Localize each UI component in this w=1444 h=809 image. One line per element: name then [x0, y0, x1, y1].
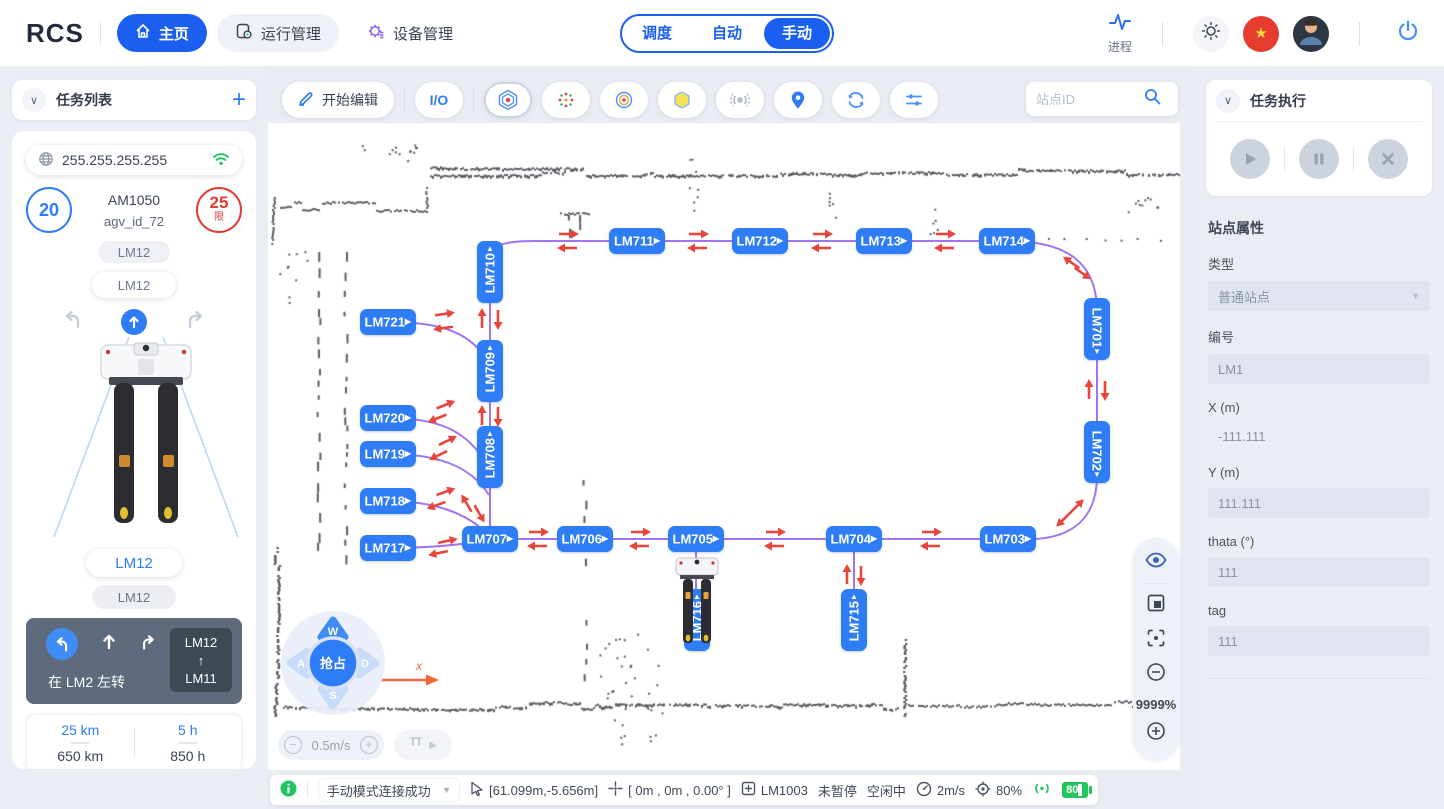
route-arrow — [494, 310, 503, 330]
monitor-gear-icon — [235, 22, 253, 44]
station-chip-1: LM12 — [98, 241, 170, 263]
nav-home[interactable]: 主页 — [117, 14, 207, 52]
map-station[interactable]: LM714▶ — [979, 228, 1035, 254]
fork-control[interactable]: ▶ — [394, 730, 452, 760]
turn-right-icon[interactable] — [185, 308, 207, 335]
scatter-icon — [556, 90, 576, 110]
avatar-icon — [1293, 16, 1329, 52]
code-value: LM1 — [1218, 362, 1243, 377]
eye-icon[interactable] — [1145, 552, 1167, 573]
location-pin-icon — [789, 90, 807, 110]
route-arrow — [689, 230, 709, 239]
robot-agv-id: agv_id_72 — [104, 214, 164, 229]
navigation-panel: LM12 ↑ LM11 在 LM2 左转 — [26, 618, 242, 704]
mode-status-text: 手动模式连接成功 — [327, 781, 431, 800]
task-exec-card: ∨ 任务执行 — [1206, 80, 1432, 196]
hexagon-layers-icon — [497, 89, 519, 111]
speedometer-icon — [916, 781, 932, 800]
signal-icon — [1032, 781, 1052, 799]
speed-minus-button[interactable]: − — [284, 736, 302, 754]
type-select[interactable]: 普通站点 ▼ — [1208, 281, 1430, 311]
robot-ip-value: 255.255.255.255 — [62, 152, 167, 168]
route-arrow — [478, 308, 487, 328]
nav-device-label: 设备管理 — [393, 23, 453, 44]
station-direction-icon: ▶ — [654, 237, 660, 245]
navigation-hint: 在 LM2 左转 — [38, 672, 162, 692]
route-arrow — [934, 244, 954, 253]
refresh-icon — [846, 90, 866, 110]
divider — [1143, 583, 1169, 584]
start-edit-label: 开始编辑 — [322, 90, 378, 110]
nav-operation-label: 运行管理 — [261, 23, 321, 44]
map-view-controls: 9999% — [1133, 538, 1179, 760]
route-arrow — [843, 564, 852, 584]
confidence-value: 80% — [996, 783, 1022, 798]
map-x-axis: x — [380, 659, 440, 692]
robot-ip-field[interactable]: 255.255.255.255 — [26, 145, 242, 175]
x-axis-arrow-icon — [380, 673, 440, 687]
nav-operation[interactable]: 运行管理 — [217, 14, 339, 52]
zoom-out-icon[interactable] — [1146, 662, 1166, 687]
robot-model: AM1050 — [104, 192, 164, 208]
mode-auto[interactable]: 自动 — [694, 18, 760, 49]
center-focus-icon[interactable] — [1146, 628, 1166, 653]
current-station: LM1003 — [741, 781, 808, 799]
station-label: LM721 — [365, 315, 405, 330]
station-label: LM711 — [614, 234, 654, 249]
station-search-input[interactable] — [1036, 92, 1136, 107]
current-station-value: LM1003 — [761, 783, 808, 798]
divider — [1162, 22, 1163, 46]
station-label: LM708 — [483, 438, 498, 478]
task-list-header: ∨ 任务列表 + — [12, 80, 256, 120]
task-list-title: 任务列表 — [56, 90, 112, 110]
svg-text:S: S — [329, 690, 336, 702]
theta-value: 111 — [1218, 565, 1238, 580]
station-label: LM706 — [562, 532, 602, 547]
x-axis-label: x — [416, 659, 440, 673]
trip-distance: 25 km — [27, 722, 134, 738]
pause-state: 未暂停 — [818, 781, 857, 800]
map-station[interactable]: LM707▶ — [462, 526, 518, 552]
speed-status: 2m/s — [916, 781, 965, 800]
map-area: LM710▲LM709▲LM708▲LM711▶LM712▶LM713▶LM71… — [268, 67, 1194, 809]
station-direction-icon: ▶ — [507, 535, 513, 543]
svg-text:D: D — [361, 658, 369, 670]
station-direction-icon: ▶ — [602, 535, 608, 543]
route-arrow — [557, 244, 577, 253]
sliders-icon — [904, 90, 924, 110]
divider — [71, 742, 89, 744]
route-arrow — [432, 322, 453, 334]
plus-square-icon — [741, 781, 756, 799]
map-station[interactable]: LM721▶ — [360, 309, 416, 335]
map-station[interactable]: LM717▶ — [360, 535, 416, 561]
map-station[interactable]: LM703▶ — [980, 526, 1036, 552]
speed-plus-button[interactable]: + — [360, 736, 378, 754]
cursor-position: [61.099m,-5.656m] — [470, 781, 598, 799]
caret-down-icon: ▼ — [442, 785, 451, 795]
station-label: LM704 — [831, 532, 871, 547]
scatter-points-button[interactable] — [542, 82, 590, 118]
filters-button[interactable] — [890, 82, 938, 118]
station-direction-icon: ▼ — [1093, 471, 1101, 479]
position-confidence-icon — [975, 781, 991, 800]
mode-dispatch[interactable]: 调度 — [624, 18, 690, 49]
status-bar: 手动模式连接成功 ▼ [61.099m,-5.656m] [ 0m , 0m ,… — [270, 775, 1098, 805]
direction-row — [26, 308, 242, 335]
limit-suffix: 限 — [214, 210, 224, 225]
station-label: LM718 — [365, 494, 405, 509]
lidar-button[interactable] — [716, 82, 764, 118]
cursor-position-value: [61.099m,-5.656m] — [489, 783, 598, 798]
route-arrow — [920, 542, 940, 551]
code-label: 编号 — [1208, 327, 1430, 346]
forklift-graphic — [101, 343, 191, 523]
robot-pose-value: [ 0m , 0m , 0.00° ] — [628, 783, 731, 798]
route-arrow — [857, 566, 866, 586]
map-station[interactable]: LM704▶ — [826, 526, 882, 552]
odometer-card: 25 km 650 km 5 h 850 h — [26, 714, 242, 769]
zoom-in-icon[interactable] — [1146, 721, 1166, 746]
route-arrow — [813, 230, 833, 239]
divider — [1208, 678, 1430, 679]
map-station[interactable]: LM718▶ — [360, 488, 416, 514]
topbar-actions: 进程 ★ — [1108, 0, 1426, 67]
sun-icon — [1201, 21, 1221, 46]
station-direction-icon: ▲ — [486, 430, 494, 438]
straight-icon — [100, 633, 118, 656]
route-arrow — [527, 542, 547, 551]
route-arrow: ↑ — [198, 653, 205, 668]
map-station[interactable]: LM713▶ — [856, 228, 912, 254]
battery-percent: 80 — [1066, 784, 1078, 796]
main-nav: 主页 运行管理 设备管理 — [117, 14, 471, 52]
top-bar: RCS 主页 运行管理 设备管理 调度 自动 手动 进程 ★ — [0, 0, 1444, 67]
map-robot-sprite[interactable] — [673, 556, 721, 653]
start-edit-button[interactable]: 开始编辑 — [282, 82, 394, 118]
station-direction-icon: ▲ — [850, 593, 858, 601]
map-station[interactable]: LM715▲ — [841, 589, 867, 651]
map-station[interactable]: LM709▲ — [477, 340, 503, 402]
go-straight-icon[interactable] — [121, 309, 147, 335]
route-arrow — [478, 405, 487, 425]
power-icon — [1396, 19, 1420, 48]
route-arrow — [559, 230, 579, 239]
station-label: LM714 — [984, 234, 1024, 249]
pencil-icon — [298, 91, 314, 110]
station-direction-icon: ▼ — [1093, 348, 1101, 356]
station-direction-icon: ▶ — [405, 450, 411, 458]
total-hours: 850 h — [135, 748, 242, 764]
station-label: LM709 — [483, 352, 498, 392]
station-search — [1026, 82, 1178, 116]
station-direction-icon: ▶ — [405, 318, 411, 326]
turn-left-icon[interactable] — [61, 308, 83, 335]
manual-speed-control: − 0.5m/s + — [278, 730, 384, 760]
battery-indicator: 80 — [1062, 782, 1088, 798]
crosshair-icon — [608, 781, 623, 799]
route-arrow — [631, 528, 651, 537]
route-arrow — [494, 407, 503, 427]
station-label: LM701 — [1090, 308, 1105, 348]
map-station[interactable]: LM708▲ — [477, 426, 503, 488]
theta-label: thata (°) — [1208, 534, 1430, 549]
search-icon[interactable] — [1144, 88, 1161, 110]
info-icon — [280, 780, 297, 800]
route-to: LM11 — [185, 671, 217, 686]
robot-identity: AM1050 agv_id_72 — [104, 192, 164, 229]
route-arrow — [435, 484, 457, 499]
tag-input[interactable]: 111 — [1208, 626, 1430, 656]
station-label: LM703 — [985, 532, 1025, 547]
route-from: LM12 — [185, 635, 218, 650]
speed-circle: 20 — [26, 187, 72, 233]
station-label: LM713 — [861, 234, 901, 249]
navigation-arrows — [38, 628, 162, 660]
route-arrow — [1085, 379, 1094, 399]
x-label: X (m) — [1208, 400, 1430, 415]
station-direction-icon: ▶ — [405, 497, 411, 505]
station-direction-icon: ▶ — [871, 535, 877, 543]
station-properties-title: 站点属性 — [1208, 218, 1430, 238]
station-direction-icon: ▶ — [1025, 535, 1031, 543]
total-distance: 650 km — [27, 748, 134, 764]
confidence-status: 80% — [975, 781, 1022, 800]
fork-play-icon: ▶ — [429, 740, 437, 751]
divider — [1359, 22, 1360, 46]
map-station[interactable]: LM702▼ — [1084, 421, 1110, 483]
y-input[interactable]: 111.111 — [1208, 488, 1430, 518]
robot-speed-row: 20 AM1050 agv_id_72 25 限 — [26, 187, 242, 233]
robot-pose: [ 0m , 0m , 0.00° ] — [608, 781, 731, 799]
location-button[interactable] — [774, 82, 822, 118]
divider — [1284, 146, 1285, 172]
route-box: LM12 ↑ LM11 — [170, 628, 232, 692]
task-exec-title: 任务执行 — [1250, 91, 1306, 111]
route-arrow — [766, 528, 786, 537]
theme-button[interactable] — [1193, 16, 1229, 52]
chevron-down-icon[interactable]: ∨ — [1216, 89, 1240, 113]
route-arrow — [936, 230, 956, 239]
turn-left-active-icon — [46, 628, 78, 660]
map-station[interactable]: LM710▲ — [477, 241, 503, 303]
robot-card: 255.255.255.255 20 AM1050 agv_id_72 25 限… — [12, 131, 256, 769]
mode-status-select[interactable]: 手动模式连接成功 ▼ — [318, 778, 460, 802]
station-label: LM710 — [483, 253, 498, 293]
station-direction-icon: ▲ — [486, 344, 494, 352]
svg-text:W: W — [328, 626, 339, 638]
speed-value: 2m/s — [937, 783, 965, 798]
layers-hexagon-button[interactable] — [484, 82, 532, 118]
hours-stat: 5 h 850 h — [135, 722, 242, 764]
cancel-task-button[interactable] — [1368, 139, 1408, 179]
station-direction-icon: ▶ — [405, 544, 411, 552]
task-list-panel: ∨ 任务列表 + 255.255.255.255 20 AM1050 agv_i… — [0, 67, 268, 809]
map-station[interactable]: LM701▼ — [1084, 298, 1110, 360]
idle-state: 空闲中 — [867, 781, 906, 800]
task-exec-panel: ∨ 任务执行 站点属性 类型 普通站点 ▼ 编号 LM1 X (m) -111.… — [1194, 67, 1444, 809]
minimap-icon[interactable] — [1146, 593, 1166, 618]
cursor-icon — [470, 781, 484, 799]
route-arrow — [1101, 381, 1110, 401]
turn-right-small-icon — [140, 633, 158, 656]
station-label: LM717 — [365, 541, 405, 556]
x-value: -111.111 — [1218, 429, 1265, 444]
current-station-pill: LM12 — [86, 549, 182, 577]
station-label: LM720 — [365, 411, 405, 426]
battery-nib — [1089, 786, 1092, 794]
map-station[interactable]: LM711▶ — [609, 228, 665, 254]
yellow-hexagon-icon — [672, 90, 692, 110]
divider — [100, 21, 101, 45]
gear-icon — [367, 22, 385, 44]
home-icon — [135, 23, 151, 43]
divider — [1353, 146, 1354, 172]
route-arrow — [764, 542, 784, 551]
mode-manual[interactable]: 手动 — [764, 18, 830, 49]
manual-speed-value: 0.5m/s — [311, 738, 350, 753]
station-properties: 站点属性 类型 普通站点 ▼ 编号 LM1 X (m) -111.111 Y (… — [1194, 218, 1444, 679]
power-button[interactable] — [1390, 16, 1426, 52]
globe-icon — [38, 151, 54, 170]
station-label: LM705 — [673, 532, 713, 547]
station-direction-icon: ▶ — [901, 237, 907, 245]
refresh-button[interactable] — [832, 82, 880, 118]
station-label: LM715 — [847, 601, 862, 641]
limit-value: 25 — [210, 195, 229, 210]
svg-text:抢占: 抢占 — [320, 656, 346, 671]
divider — [307, 782, 308, 798]
y-label: Y (m) — [1208, 465, 1430, 480]
io-label: I/O — [430, 92, 449, 108]
route-arrow — [811, 244, 831, 253]
tag-label: tag — [1208, 603, 1430, 618]
chevron-down-icon[interactable]: ∨ — [22, 88, 46, 112]
map-station[interactable]: LM719▶ — [360, 441, 416, 467]
route-arrow — [435, 397, 457, 413]
route-arrow — [629, 542, 649, 551]
caret-down-icon: ▼ — [1411, 291, 1420, 301]
map-station[interactable]: LM706▶ — [557, 526, 613, 552]
zoom-percent: 9999% — [1136, 697, 1176, 712]
map-toolbar: 开始编辑 I/O — [282, 80, 938, 120]
route-arrow — [687, 244, 707, 253]
task-exec-buttons — [1216, 122, 1422, 196]
distance-stat: 25 km 650 km — [27, 722, 134, 764]
theta-input[interactable]: 111 — [1208, 557, 1430, 587]
play-task-button[interactable] — [1230, 139, 1270, 179]
divider — [179, 742, 197, 744]
station-direction-icon: ▲ — [486, 245, 494, 253]
process-button[interactable]: 进程 — [1108, 12, 1132, 55]
nav-home-label: 主页 — [159, 23, 189, 44]
waveform-icon — [1108, 12, 1132, 37]
svg-text:A: A — [297, 658, 305, 670]
tag-value: 111 — [1218, 634, 1238, 649]
app-logo: RCS — [26, 18, 84, 49]
station-chip-2: LM12 — [92, 272, 176, 298]
task-exec-header: ∨ 任务执行 — [1216, 80, 1422, 122]
language-flag-button[interactable]: ★ — [1243, 16, 1279, 52]
station-label: LM719 — [365, 447, 405, 462]
nav-device[interactable]: 设备管理 — [349, 14, 471, 52]
fork-icon — [409, 736, 423, 755]
x-value-field[interactable]: -111.111 — [1208, 423, 1430, 449]
map-station[interactable]: LM720▶ — [360, 405, 416, 431]
station-label: LM702 — [1090, 431, 1105, 471]
y-value: 111.111 — [1218, 496, 1261, 511]
target-icon — [614, 90, 634, 110]
next-station-pill: LM12 — [92, 585, 176, 609]
trip-hours: 5 h — [135, 722, 242, 738]
map-station[interactable]: LM705▶ — [668, 526, 724, 552]
route-arrow — [437, 432, 459, 449]
station-direction-icon: ▶ — [405, 414, 411, 422]
add-task-button[interactable]: + — [232, 90, 246, 110]
route-arrow — [529, 528, 549, 537]
forklift-view — [26, 337, 242, 545]
route-arrow — [434, 308, 455, 320]
type-value: 普通站点 — [1218, 287, 1270, 306]
station-direction-icon: ▶ — [1024, 237, 1030, 245]
battery-gap — [1078, 784, 1082, 796]
io-button[interactable]: I/O — [415, 82, 463, 118]
pause-task-button[interactable] — [1299, 139, 1339, 179]
map-station[interactable]: LM712▶ — [732, 228, 788, 254]
user-avatar[interactable] — [1293, 16, 1329, 52]
radar-icon — [730, 90, 750, 110]
hexagon-area-button[interactable] — [658, 82, 706, 118]
path-layer — [268, 67, 1194, 809]
route-arrow — [922, 528, 942, 537]
mode-toggle: 调度 自动 手动 — [620, 14, 834, 53]
code-input[interactable]: LM1 — [1208, 354, 1430, 384]
station-label: LM712 — [737, 234, 777, 249]
manual-joystick[interactable]: W A D S 抢占 — [278, 608, 388, 723]
route-arrow — [427, 547, 448, 560]
station-direction-icon: ▶ — [777, 237, 783, 245]
target-rings-button[interactable] — [600, 82, 648, 118]
station-label: LM707 — [467, 532, 507, 547]
china-flag-icon: ★ — [1254, 26, 1267, 41]
process-label: 进程 — [1108, 38, 1132, 55]
divider — [404, 87, 405, 113]
station-direction-icon: ▶ — [713, 535, 719, 543]
speed-limit-circle: 25 限 — [196, 187, 242, 233]
route-arrow — [458, 492, 476, 514]
divider — [473, 87, 474, 113]
wifi-icon — [212, 152, 230, 169]
type-label: 类型 — [1208, 254, 1430, 273]
